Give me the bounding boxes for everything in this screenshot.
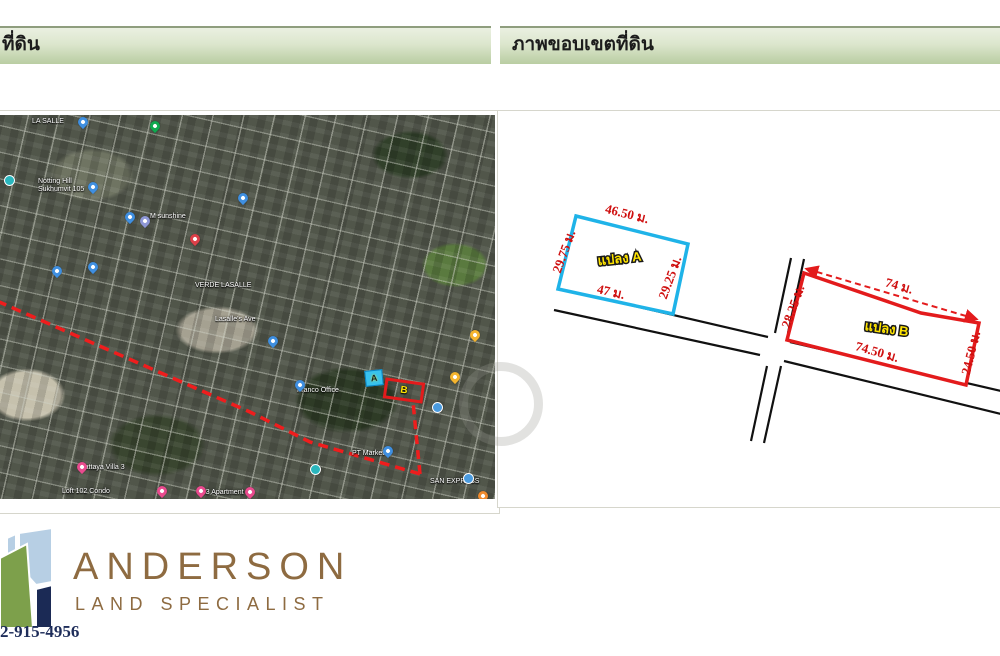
header-left-title: ที่ดิน [2, 34, 40, 55]
map-pin-blue [76, 115, 90, 129]
anderson-logo-mark [0, 527, 55, 628]
map-panel: A B LA SALLENotting Hill Sukhumvit 105M … [0, 110, 500, 514]
header-right-title: ภาพขอบเขตที่ดิน [512, 34, 654, 55]
map-pin-blue [86, 180, 100, 194]
map-pin-green-transit [148, 119, 162, 133]
map-pin-orange [476, 489, 490, 499]
map-pin-blue-circle [432, 402, 443, 413]
map-label: M sunshine [150, 213, 186, 221]
map-pin-teal-circle [310, 464, 321, 475]
map-overlay: A B LA SALLENotting Hill Sukhumvit 105M … [0, 115, 495, 499]
map-label: Lasalle's Ave [215, 316, 256, 324]
map-pin-blue [236, 191, 250, 205]
boundary-diagram-panel: 46.50 ม. 29.75 ม. 29.25 ม. 47 ม. แปลง A … [497, 110, 1000, 508]
map-label: LA SALLE [32, 118, 64, 126]
route-line [0, 115, 495, 499]
map-pin-blue [86, 260, 100, 274]
map-pin-yellow [468, 328, 482, 342]
map-pin-blue [266, 334, 280, 348]
map-label: PT Market [352, 450, 384, 458]
map-marker-parcel-a: A [364, 369, 384, 387]
map-pin-pink [155, 484, 169, 498]
brand-name: ANDERSON [73, 546, 352, 589]
map-label: Loft 102 Condo [62, 488, 110, 496]
map-pin-yellow [448, 370, 462, 384]
slide: ที่ดิน ภาพขอบเขตที่ดิน A B LA SALLENotti… [0, 0, 1000, 656]
map-label: Notting Hill Sukhumvit 105 [38, 178, 84, 194]
header-right: ภาพขอบเขตที่ดิน [500, 26, 1000, 64]
map-label: VERDE LASALLE [195, 282, 251, 290]
map-marker-parcel-b: B [383, 377, 426, 403]
brand-tagline: LAND SPECIALIST [75, 594, 330, 615]
header-left: ที่ดิน [0, 26, 491, 64]
map-pin-teal [4, 175, 15, 186]
boundary-diagram: 46.50 ม. 29.75 ม. 29.25 ม. 47 ม. แปลง A … [498, 111, 1000, 505]
parcel-a-dim-top: 46.50 ม. [604, 201, 651, 226]
phone-number: 2-915-4956 [0, 622, 79, 642]
map-pin-blue-circle [463, 473, 474, 484]
map-pin-blue [50, 264, 64, 278]
map-pin-red [188, 232, 202, 246]
map-pin-blue [123, 210, 137, 224]
map-pin-pink [243, 485, 257, 499]
